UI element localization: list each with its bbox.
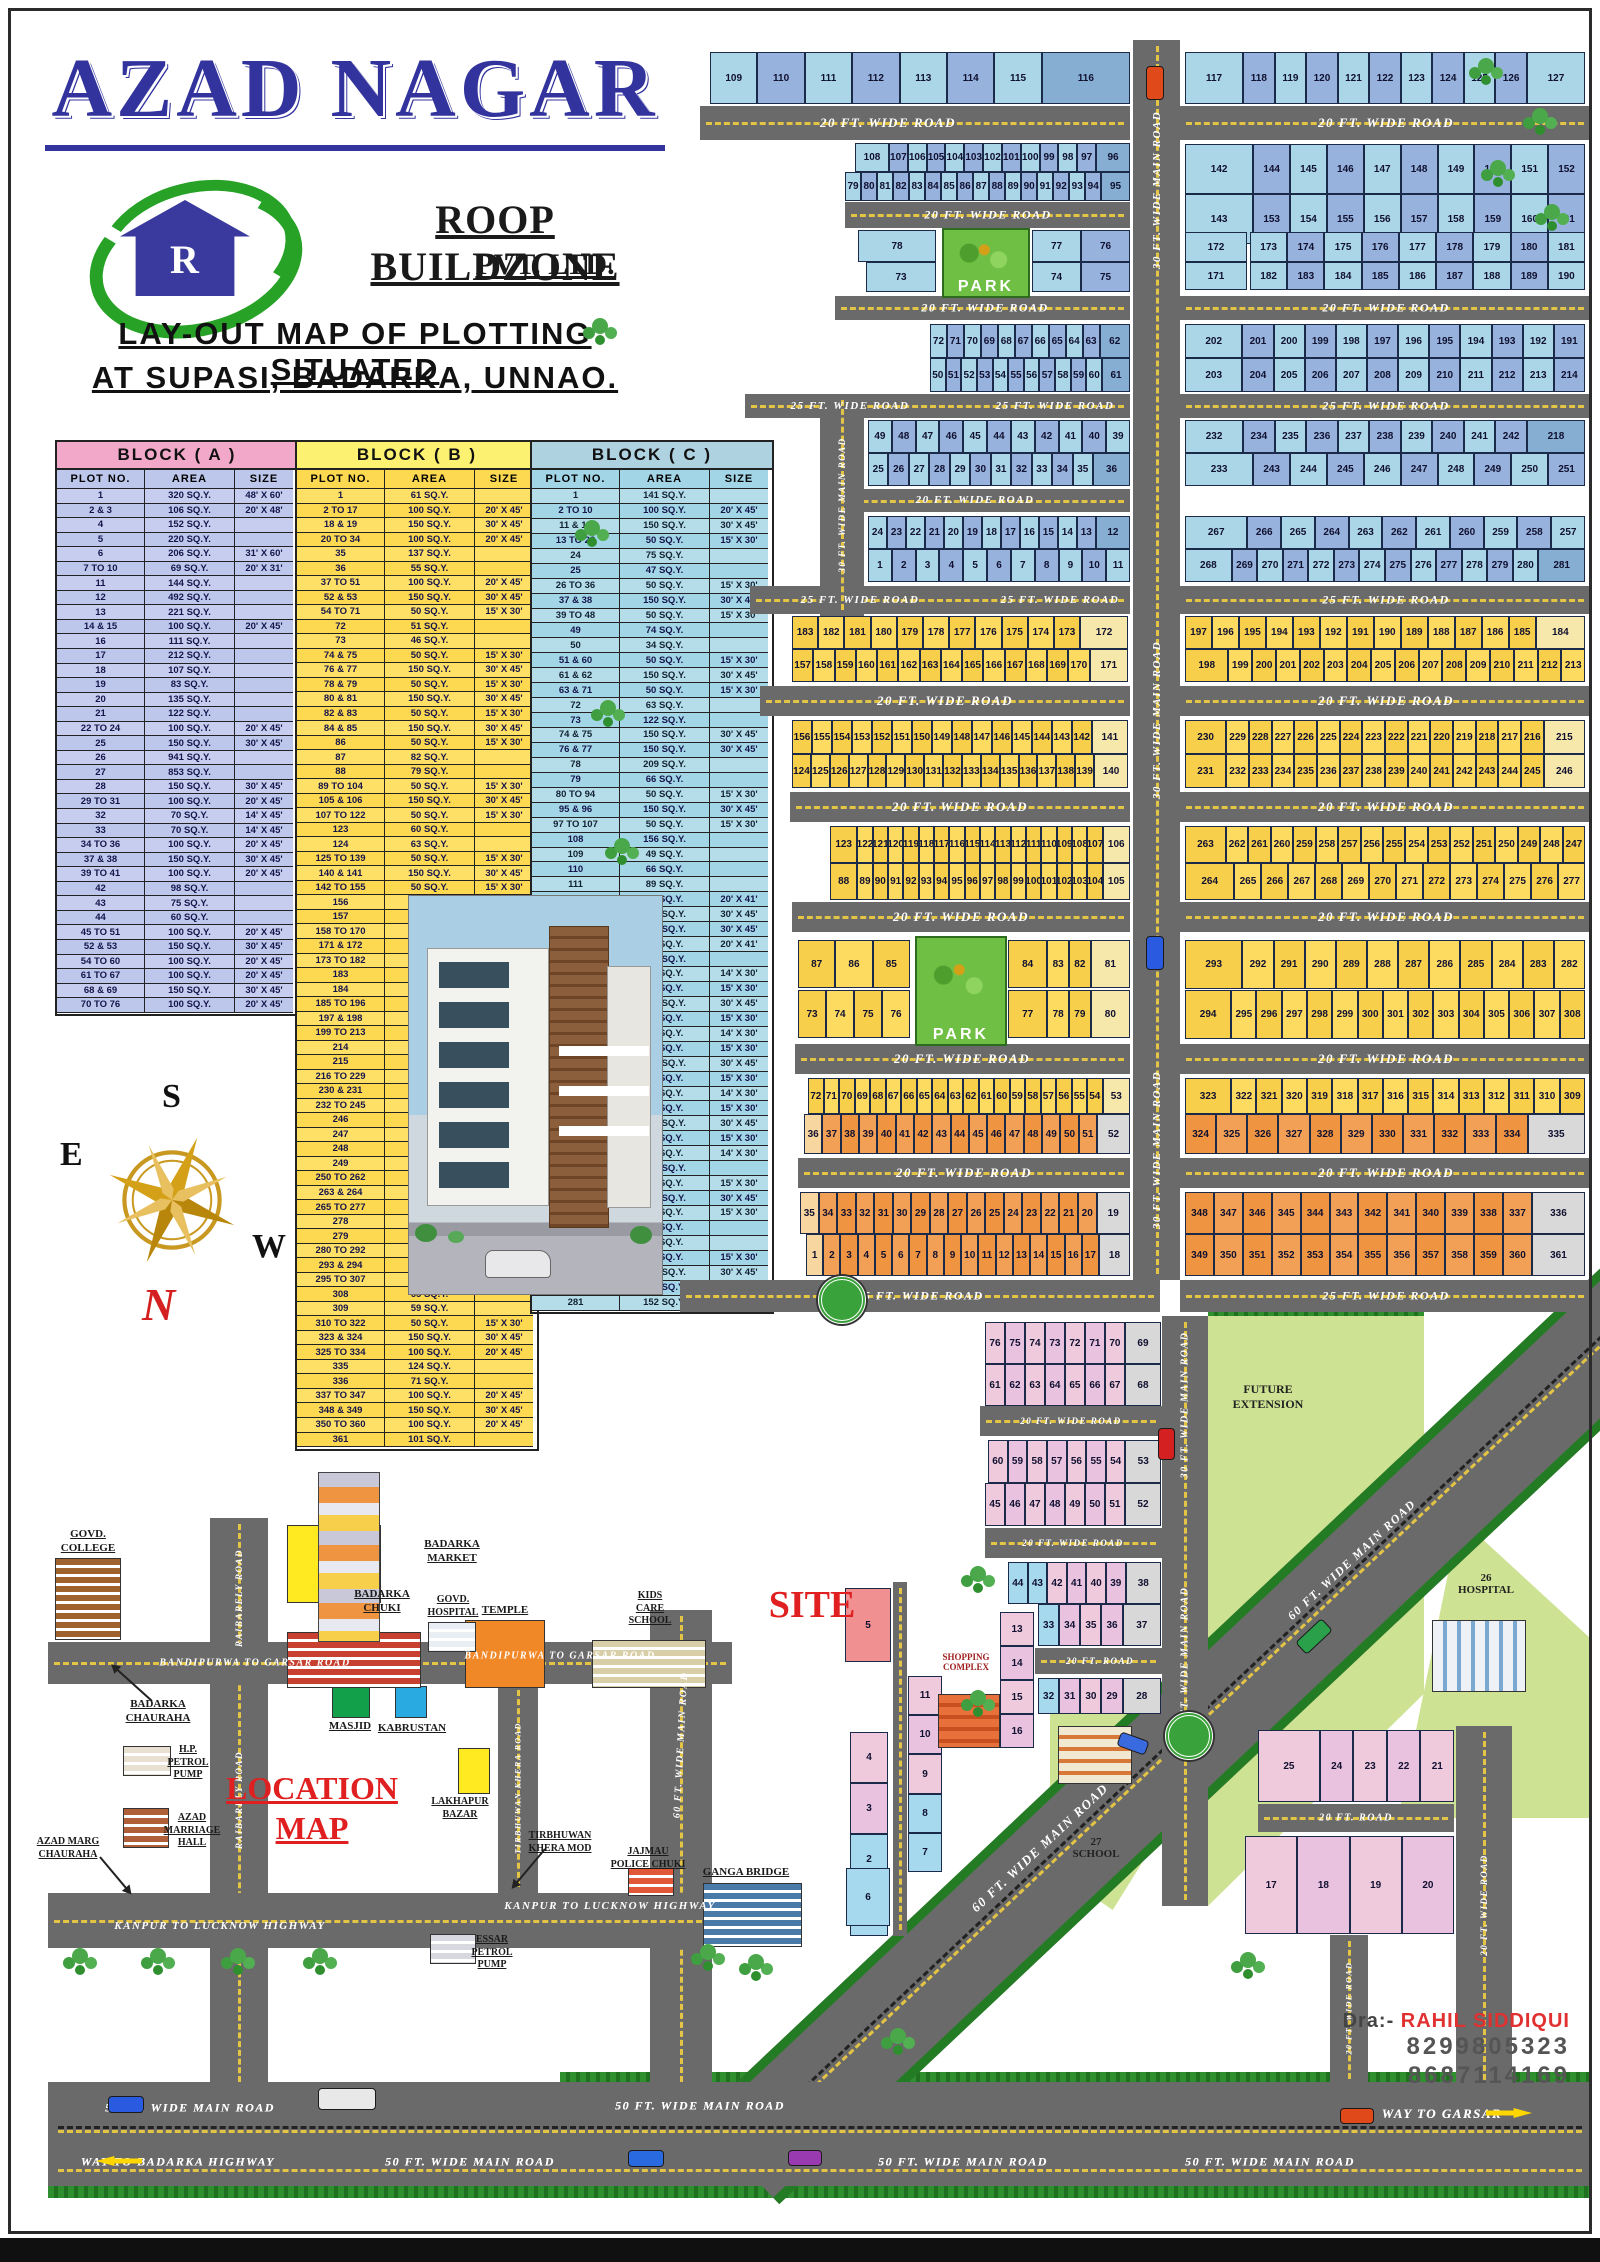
plot-cell: 17: [1082, 1234, 1099, 1276]
plot-cell: 80: [861, 172, 877, 201]
table-row: 26941 SQ.Y.: [57, 751, 297, 766]
road-label: BANDIPURWA TO GARSAR ROAD: [159, 1658, 350, 1669]
tree-icon: [1240, 1952, 1256, 1968]
table-row: 8650 SQ.Y.15' X 30': [297, 736, 537, 751]
zone-label: 27 SCHOOL: [1072, 1836, 1119, 1860]
plot-cell: 48: [1045, 1483, 1065, 1526]
plot-cell: 250: [1511, 453, 1548, 486]
plot-cell: 312: [1484, 1078, 1509, 1114]
plot-strip: 505152535455565758596061: [930, 358, 1130, 392]
table-cell: 310 TO 322: [297, 1316, 385, 1331]
plot-cell: 73: [798, 990, 826, 1038]
plot-cell: 119: [903, 826, 918, 863]
plot-cell: 57: [1039, 358, 1055, 392]
road-label: 25 FT. WIDE ROAD: [791, 400, 910, 412]
table-row: 68 & 69150 SQ.Y.30' X 45': [57, 984, 297, 999]
plot-cell: 56: [1024, 358, 1040, 392]
table-cell: 247: [297, 1128, 385, 1143]
plot-cell: 82: [893, 172, 909, 201]
plot-cell: 206: [1395, 649, 1419, 682]
plot-cell: 39: [1106, 420, 1130, 453]
plot-cell: 269: [1342, 863, 1369, 900]
table-cell: 100 SQ.Y.: [385, 1389, 475, 1404]
plot-cell: 26: [967, 1192, 986, 1234]
table-cell: 123: [297, 823, 385, 838]
table-cell: 232 TO 245: [297, 1099, 385, 1114]
plot-cell: 101: [1002, 143, 1021, 172]
plot-cell: 107: [889, 143, 908, 172]
plot-cell: 67: [886, 1078, 902, 1114]
plot-cell: 267: [1288, 863, 1315, 900]
plot-cell: 93: [1069, 172, 1085, 201]
road-label: 20 FT. WIDE ROAD: [1318, 693, 1454, 709]
plot-cell: 75: [1081, 262, 1130, 292]
table-row: 108156 SQ.Y.: [532, 833, 772, 848]
plot-cell: 119: [1275, 52, 1307, 104]
plot-cell: 36: [1093, 453, 1130, 486]
plot-cell: 68: [998, 324, 1015, 358]
plot-cell: 181: [844, 616, 870, 649]
plot-cell: 302: [1408, 990, 1433, 1039]
table-cell: 122 SQ.Y.: [620, 713, 710, 728]
plot-cell: 1: [868, 549, 892, 582]
plot-cell: 59: [1010, 1078, 1026, 1114]
plot-cell: 333: [1465, 1114, 1496, 1154]
landmark-label: LAKHAPUR BAZAR: [431, 1796, 488, 1821]
table-cell: 14' X 30': [710, 1027, 768, 1042]
plot-strip: 348347346345344343342341340339338337336: [1185, 1192, 1585, 1234]
plot-strip: 1981992002012022032042052062072082092102…: [1185, 649, 1585, 682]
plot-cell: 118: [919, 826, 934, 863]
plot-cell: 115: [994, 52, 1041, 104]
landmark-label: GOVD. HOSPITAL: [428, 1594, 479, 1619]
plot-cell: 296: [1256, 990, 1281, 1039]
table-cell: [710, 877, 768, 892]
road-label: 20 FT. WIDE ROAD: [1479, 1854, 1489, 1956]
plot-cell: 84: [1008, 940, 1047, 988]
plot-cell: 207: [1336, 358, 1367, 392]
plot-cell: 201: [1276, 649, 1300, 682]
plot-cell: 31: [1059, 1678, 1080, 1714]
plot-cell: 110: [757, 52, 804, 104]
table-cell: 31' X 60': [235, 547, 293, 562]
table-cell: 20' X 45': [235, 794, 293, 809]
table-cell: 20' X 48': [235, 504, 293, 519]
plot-cell: 157: [792, 649, 813, 682]
table-cell: 100 SQ.Y.: [385, 533, 475, 548]
plot-cell: 147: [972, 720, 992, 754]
plot-cell: 183: [1287, 262, 1324, 290]
plot-cell: 236: [1317, 754, 1340, 788]
plot-cell: 182: [818, 616, 844, 649]
landmark-label: MASJID: [329, 1720, 371, 1734]
compass-west: W: [252, 1228, 286, 1266]
plot-cell: 22: [1387, 1730, 1421, 1802]
table-cell: 2 TO 17: [297, 504, 385, 519]
road-label: 20 FT. WIDE ROAD: [1318, 799, 1454, 815]
plot-strip: 3637383940414243444546474849505152: [804, 1114, 1130, 1154]
plot-cell: 126: [830, 754, 849, 788]
plot-cell: 25: [1258, 1730, 1320, 1802]
road-label: 20 FT. WIDE ROAD: [893, 909, 1029, 925]
plot-cell: 65: [917, 1078, 933, 1114]
table-cell: 150 SQ.Y.: [385, 692, 475, 707]
plot-cell: 40: [877, 1114, 895, 1154]
table-cell: 15' X 30': [475, 852, 533, 867]
plot-cell: 245: [1327, 453, 1364, 486]
plot-cell: 6: [892, 1234, 909, 1276]
table-cell: 20' X 45': [235, 969, 293, 984]
table-cell: 30' X 45': [710, 1116, 768, 1131]
plot-cell: 205: [1371, 649, 1395, 682]
plot-cell: 75: [854, 990, 882, 1038]
table-cell: 30' X 45': [235, 940, 293, 955]
plot-cell: 3: [840, 1234, 857, 1276]
table-cell: 348 & 349: [297, 1403, 385, 1418]
plot-cell: 36: [1101, 1604, 1122, 1646]
table-cell: [475, 750, 533, 765]
plot-strip: 2302292282272262252242232222212202192182…: [1185, 720, 1585, 754]
plot-cell: 34: [819, 1192, 838, 1234]
plot-cell: 15: [1039, 516, 1058, 549]
plot-strip: 1561551541531521511501491481471461451441…: [792, 720, 1128, 754]
table-cell: 135 SQ.Y.: [145, 693, 235, 708]
plot-cell: 210: [1490, 649, 1514, 682]
table-cell: 78 & 79: [297, 678, 385, 693]
plot-cell: 114: [980, 826, 995, 863]
plot-cell: 40: [1086, 1562, 1106, 1604]
plot-cell: 320: [1282, 1078, 1307, 1114]
plot-cell: 290: [1305, 940, 1336, 989]
plot-cell: 203: [1324, 649, 1348, 682]
plot-cell: 325: [1216, 1114, 1247, 1154]
table-cell: 20' X 45': [475, 533, 533, 548]
table-cell: 7 TO 10: [57, 562, 145, 577]
table-row: 95 & 96150 SQ.Y.30' X 45': [532, 803, 772, 818]
table-cell: 79 SQ.Y.: [385, 765, 475, 780]
plot-cell: 236: [1306, 420, 1338, 453]
table-row: 22 TO 24100 SQ.Y.20' X 45': [57, 722, 297, 737]
table-cell: [235, 664, 293, 679]
page-title: AZAD NAGAR: [45, 40, 665, 151]
plot-cell: 352: [1272, 1234, 1301, 1276]
plot-cell: 229: [1226, 720, 1249, 754]
plot-cell: 14: [1030, 1234, 1047, 1276]
plot-cell: 17: [1245, 1836, 1297, 1934]
table-cell: [710, 1161, 768, 1176]
plot-cell: 63: [1083, 324, 1100, 358]
plot-cell: 3: [850, 1783, 888, 1834]
table-cell: 37 TO 51: [297, 576, 385, 591]
plot-cell: 45: [969, 1114, 987, 1154]
plot-cell: 99: [1040, 143, 1059, 172]
plot-cell: 251: [1548, 453, 1585, 486]
plot-cell: 125: [811, 754, 830, 788]
plot-cell: 105: [927, 143, 946, 172]
plot-cell: 86: [835, 940, 872, 988]
table-cell: 158 TO 170: [297, 924, 385, 939]
plot-cell: 26: [888, 453, 908, 486]
road-label: 20 FT. WIDE ROAD: [892, 799, 1028, 815]
table-row: 12463 SQ.Y.: [297, 837, 537, 852]
table-row: 11144 SQ.Y.: [57, 576, 297, 591]
tree-icon: [1490, 160, 1506, 176]
table-cell: 50 SQ.Y.: [385, 779, 475, 794]
plot-cell: 35: [1073, 453, 1093, 486]
table-row: 74 & 75150 SQ.Y.30' X 45': [532, 728, 772, 743]
plot-strip: 3534333231302928272625242322212019: [800, 1192, 1130, 1234]
plot-cell: 29: [1101, 1678, 1122, 1714]
road-label: 20 FT. WIDE ROAD: [1022, 1538, 1124, 1548]
plot-cell: 49: [868, 420, 892, 453]
plot-cell: 271: [1283, 549, 1309, 582]
table-cell: 280 TO 292: [297, 1244, 385, 1259]
plot-cell: 142: [1072, 720, 1092, 754]
plot-cell: 85: [873, 940, 910, 988]
table-cell: 30' X 45': [710, 519, 768, 534]
table-cell: [710, 489, 768, 504]
plot-cell: 95: [949, 863, 964, 900]
plot-cell: 71: [947, 324, 964, 358]
plot-cell: 25: [985, 1192, 1004, 1234]
plot-cell: 219: [1453, 720, 1476, 754]
table-cell: 32: [57, 809, 145, 824]
plot-cell: 55: [1086, 1440, 1106, 1483]
table-cell: 125 TO 139: [297, 852, 385, 867]
table-row: 4298 SQ.Y.: [57, 882, 297, 897]
table-cell: 30' X 45': [710, 743, 768, 758]
table-row: 107 TO 12250 SQ.Y.15' X 30': [297, 808, 537, 823]
plot-cell: 13: [1000, 1612, 1034, 1646]
table-cell: 100 SQ.Y.: [385, 1418, 475, 1433]
table-cell: 30' X 45': [475, 721, 533, 736]
table-row: 73122 SQ.Y.: [532, 713, 772, 728]
plot-cell: 244: [1290, 453, 1327, 486]
table-cell: 20' X 45': [475, 504, 533, 519]
plot-cell: 127: [849, 754, 868, 788]
landmark-label: BADARKA CHAURAHA: [126, 1698, 191, 1726]
table-cell: 82 SQ.Y.: [385, 750, 475, 765]
table-cell: 197 & 198: [297, 1012, 385, 1027]
plot-cell: 329: [1341, 1114, 1372, 1154]
table-row: 11189 SQ.Y.: [532, 877, 772, 892]
plot-cell: 112: [1011, 826, 1026, 863]
plot-cell: 227: [1272, 720, 1295, 754]
table-row: 84 & 85150 SQ.Y.30' X 45': [297, 721, 537, 736]
table-row: 142 TO 15550 SQ.Y.15' X 30': [297, 881, 537, 896]
render-car: [485, 1250, 551, 1278]
table-cell: 55 SQ.Y.: [385, 562, 475, 577]
plot-cell: 238: [1362, 754, 1385, 788]
plot-cell: 79: [1069, 990, 1091, 1038]
plot-cell: 115: [965, 826, 980, 863]
table-cell: 50 SQ.Y.: [620, 788, 710, 803]
column-header: AREA: [385, 470, 475, 489]
plot-cell: 136: [1019, 754, 1038, 788]
plot-cell: 18: [982, 516, 1001, 549]
table-row: 97 TO 10750 SQ.Y.15' X 30': [532, 818, 772, 833]
plot-cell: 152: [1548, 144, 1585, 194]
table-cell: 18 & 19: [297, 518, 385, 533]
plot-cell: 8: [927, 1234, 944, 1276]
plot-cell: 155: [812, 720, 832, 754]
plot-cell: 20: [1078, 1192, 1097, 1234]
plot-cell: 43: [1028, 1562, 1048, 1604]
plot-cell: 210: [1429, 358, 1460, 392]
plot-cell: 123: [830, 826, 857, 863]
table-cell: 265 TO 277: [297, 1200, 385, 1215]
table-cell: 61 & 62: [532, 668, 620, 683]
plot-cell: 66: [1085, 1364, 1105, 1406]
table-row: 34 TO 36100 SQ.Y.20' X 45': [57, 838, 297, 853]
company-suffix: PVT. LTD.: [430, 248, 660, 282]
plot-cell: 202: [1300, 649, 1324, 682]
contact-phone-2: 8687114169: [1290, 2062, 1570, 2091]
compass-south: S: [162, 1078, 181, 1116]
plot-cell: 103: [964, 143, 983, 172]
table-cell: 47 SQ.Y.: [620, 564, 710, 579]
table-cell: 15' X 30': [710, 1206, 768, 1221]
plot-cell: 46: [1005, 1483, 1025, 1526]
table-cell: [710, 862, 768, 877]
table-cell: 50 SQ.Y.: [620, 579, 710, 594]
plot-cell: 137: [1037, 754, 1056, 788]
shopping-complex-building: [938, 1694, 1000, 1748]
table-cell: 336: [297, 1374, 385, 1389]
plot-cell: 6: [987, 549, 1011, 582]
table-row: 61 & 62150 SQ.Y.30' X 45': [532, 668, 772, 683]
table-cell: 39 TO 48: [532, 609, 620, 624]
table-cell: 54 TO 60: [57, 955, 145, 970]
plot-cell: 48: [1024, 1114, 1042, 1154]
plot-cell: 243: [1253, 453, 1290, 486]
plot-cell: 19: [1350, 1836, 1402, 1934]
plot-cell: 194: [1460, 324, 1491, 358]
plot-cell: 19: [963, 516, 982, 549]
plot-cell: 30: [970, 453, 990, 486]
plot-strip: 2682692702712722732742752762772782792802…: [1185, 549, 1585, 582]
plot-cell: 40: [1082, 420, 1106, 453]
table-cell: 30' X 45': [235, 984, 293, 999]
table-cell: 15' X 30': [475, 881, 533, 896]
table-row: 54 TO 7150 SQ.Y.15' X 30': [297, 605, 537, 620]
column-header: SIZE: [710, 470, 768, 489]
table-cell: 20' X 31': [235, 562, 293, 577]
plot-strip: 123456789101112131415161718: [806, 1234, 1130, 1276]
plot-cell: 258: [1316, 826, 1338, 863]
plot-cell: 130: [905, 754, 924, 788]
table-cell: 24: [532, 549, 620, 564]
table-row: 310 TO 32250 SQ.Y.15' X 30': [297, 1316, 537, 1331]
road-50ft-main: [48, 2082, 1592, 2186]
table-row: 18 & 19150 SQ.Y.30' X 45': [297, 518, 537, 533]
plot-cell: 297: [1282, 990, 1307, 1039]
plot-cell: 94: [1085, 172, 1101, 201]
table-cell: [475, 823, 533, 838]
plot-cell: 42: [1047, 1562, 1067, 1604]
table-row: 4152 SQ.Y.: [57, 518, 297, 533]
landmark-label: GOVD. COLLEGE: [61, 1528, 115, 1556]
plot-cell: 106: [1103, 826, 1130, 863]
plot-cell: 203: [1185, 358, 1242, 392]
table-row: 51 & 6050 SQ.Y.15' X 30': [532, 653, 772, 668]
plot-cell: 86: [957, 172, 973, 201]
table-cell: 150 SQ.Y.: [620, 728, 710, 743]
table-cell: 30' X 45': [710, 922, 768, 937]
plot-cell: 294: [1185, 990, 1231, 1039]
plot-cell: 179: [897, 616, 923, 649]
plot-cell: 92: [903, 863, 918, 900]
plot-cell: 303: [1433, 990, 1458, 1039]
table-row: 2 & 3106 SQ.Y.20' X 48': [57, 504, 297, 519]
table-cell: 20' X 45': [235, 838, 293, 853]
plot-cell: 339: [1445, 1192, 1474, 1234]
table-cell: 82 & 83: [297, 707, 385, 722]
table-row: 5220 SQ.Y.: [57, 533, 297, 548]
plot-cell: 281: [1538, 549, 1585, 582]
block-title: BLOCK ( B ): [297, 442, 537, 470]
table-cell: 150 SQ.Y.: [145, 780, 235, 795]
table-cell: 20' X 45': [235, 925, 293, 940]
table-cell: 140 & 141: [297, 866, 385, 881]
plot-cell: 331: [1403, 1114, 1434, 1154]
plot-cell: 161: [877, 649, 898, 682]
building-render-photo: [408, 895, 663, 1295]
table-cell: [475, 620, 533, 635]
plot-cell: 34: [1052, 453, 1072, 486]
table-cell: 73: [297, 634, 385, 649]
plot-cell: 20: [944, 516, 963, 549]
table-cell: [710, 848, 768, 863]
plot-strip: 2642652662672682692702712722732742752762…: [1185, 863, 1585, 900]
plot-cell: 28: [930, 1192, 949, 1234]
plot-cell: 54: [1087, 1078, 1103, 1114]
road-label: 25 FT. WIDE ROAD: [1001, 594, 1120, 606]
table-row: 105 & 106150 SQ.Y.30' X 45': [297, 794, 537, 809]
plot-strip: 1571581591601611621631641651661671681691…: [792, 649, 1128, 682]
plot-cell: 49: [1065, 1483, 1085, 1526]
landmark-photo: [55, 1558, 121, 1640]
plot-cell: 220: [1430, 720, 1453, 754]
plot-cell: 153: [852, 720, 872, 754]
table-row: 37 & 38150 SQ.Y.30' X 45': [532, 594, 772, 609]
table-cell: [235, 765, 293, 780]
table-row: 54 TO 60100 SQ.Y.20' X 45': [57, 955, 297, 970]
plot-cell: 209: [1466, 649, 1490, 682]
plot-cell: 72: [1065, 1322, 1085, 1364]
road-label: 20 FT. WIDE ROAD: [921, 301, 1048, 316]
table-cell: 100 SQ.Y.: [145, 722, 235, 737]
plot-cell: 2: [892, 549, 916, 582]
compass-star-icon: [81, 1109, 263, 1291]
plot-cell: 298: [1307, 990, 1332, 1039]
plot-cell: 110: [1041, 826, 1056, 863]
plot-cell: 71: [824, 1078, 840, 1114]
plot-cell: 117: [1185, 52, 1243, 104]
plot-cell: 191: [1554, 324, 1585, 358]
table-row: 350 TO 360100 SQ.Y.20' X 45': [297, 1418, 537, 1433]
table-cell: 15' X 30': [710, 1012, 768, 1027]
table-cell: 50 SQ.Y.: [385, 649, 475, 664]
table-row: 52 & 53150 SQ.Y.30' X 45': [297, 591, 537, 606]
plot-cell: 74: [1025, 1322, 1045, 1364]
plot-cell: 351: [1243, 1234, 1272, 1276]
landmark-label: LOCATION MAP: [226, 1768, 398, 1848]
plot-cell: 246: [1364, 453, 1401, 486]
table-row: 70 TO 76100 SQ.Y.20' X 45': [57, 998, 297, 1013]
plot-strip: 202201200199198197196195194193192191: [1185, 324, 1585, 358]
plot-cell: 93: [919, 863, 934, 900]
